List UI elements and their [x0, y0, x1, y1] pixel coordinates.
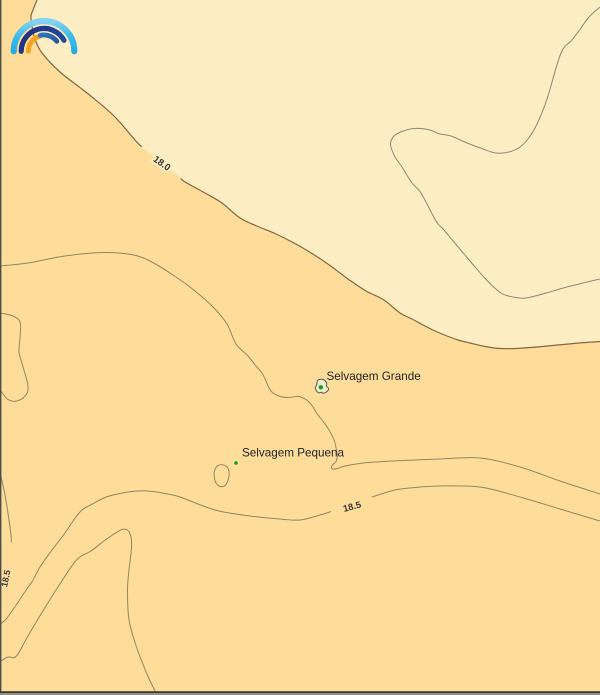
- svg-text:Selvagem Grande: Selvagem Grande: [327, 370, 421, 383]
- svg-text:Selvagem Pequena: Selvagem Pequena: [242, 447, 345, 460]
